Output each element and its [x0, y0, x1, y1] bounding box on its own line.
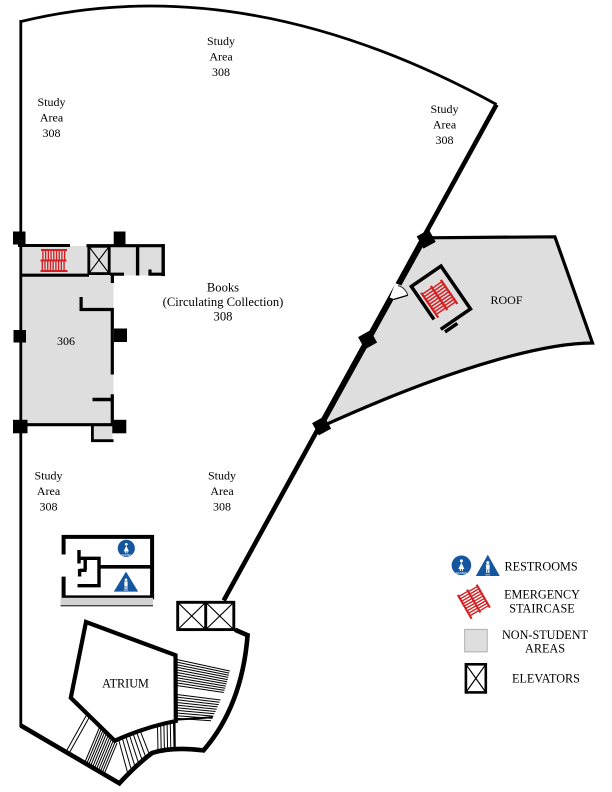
svg-text:StudyArea308: StudyArea308: [37, 95, 65, 140]
svg-text:StudyArea308: StudyArea308: [430, 102, 458, 147]
svg-text:WOMEN: WOMEN: [121, 553, 131, 557]
svg-text:ELEVATORS: ELEVATORS: [512, 672, 580, 686]
svg-text:NON-STUDENTAREAS: NON-STUDENTAREAS: [502, 628, 589, 656]
svg-text:WOMEN: WOMEN: [456, 571, 467, 575]
svg-text:StudyArea308: StudyArea308: [208, 469, 236, 514]
svg-text:StudyArea308: StudyArea308: [207, 34, 235, 79]
svg-text:MEN: MEN: [124, 590, 129, 592]
svg-text:ATRIUM: ATRIUM: [102, 677, 149, 691]
svg-text:Books(Circulating Collection)3: Books(Circulating Collection)308: [163, 280, 284, 323]
svg-text:MEN: MEN: [485, 574, 490, 576]
svg-text:EMERGENCYSTAIRCASE: EMERGENCYSTAIRCASE: [504, 587, 580, 615]
svg-text:StudyArea308: StudyArea308: [34, 469, 62, 514]
svg-text:RESTROOMS: RESTROOMS: [505, 559, 578, 573]
svg-text:ROOF: ROOF: [490, 293, 522, 307]
svg-text:306: 306: [57, 334, 75, 348]
